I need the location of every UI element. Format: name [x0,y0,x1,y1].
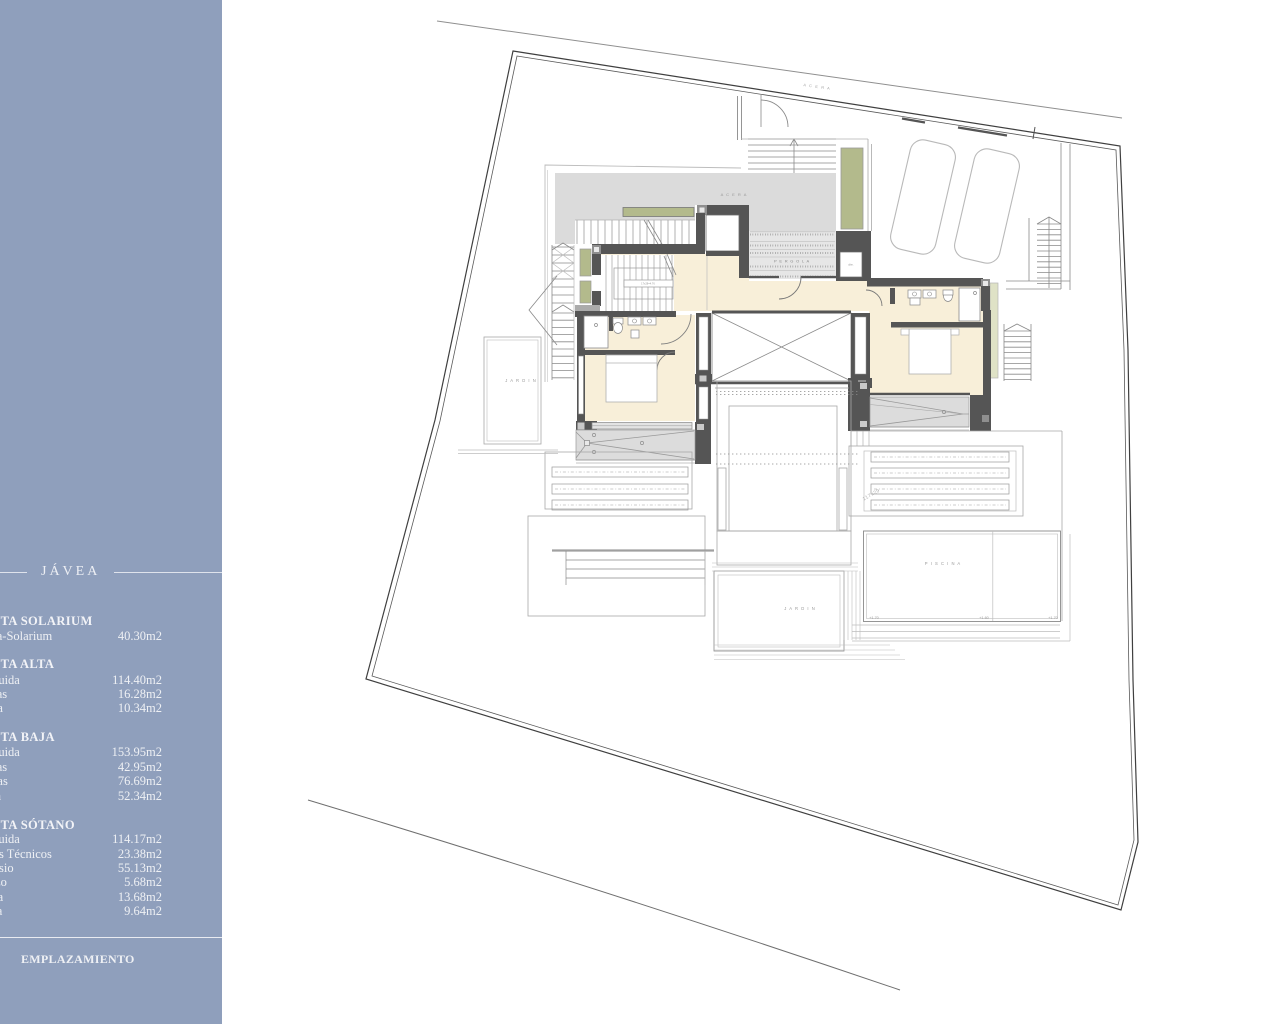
svg-text:clim.: clim. [848,263,854,267]
svg-text:A C E R A: A C E R A [803,83,831,91]
svg-text:A C E R A: A C E R A [721,192,748,197]
svg-text:+1.60: +1.60 [979,616,989,620]
svg-text:17x28=4.76: 17x28=4.76 [641,282,655,286]
svg-text:J A R D I N: J A R D I N [784,606,815,611]
svg-text:+1.70: +1.70 [1048,616,1058,620]
svg-text:P I S C I N A: P I S C I N A [925,561,961,566]
svg-text:J A R D I N: J A R D I N [505,378,536,383]
svg-text:+1.70: +1.70 [869,616,879,620]
svg-text:P E R G O L A: P E R G O L A [774,259,810,264]
